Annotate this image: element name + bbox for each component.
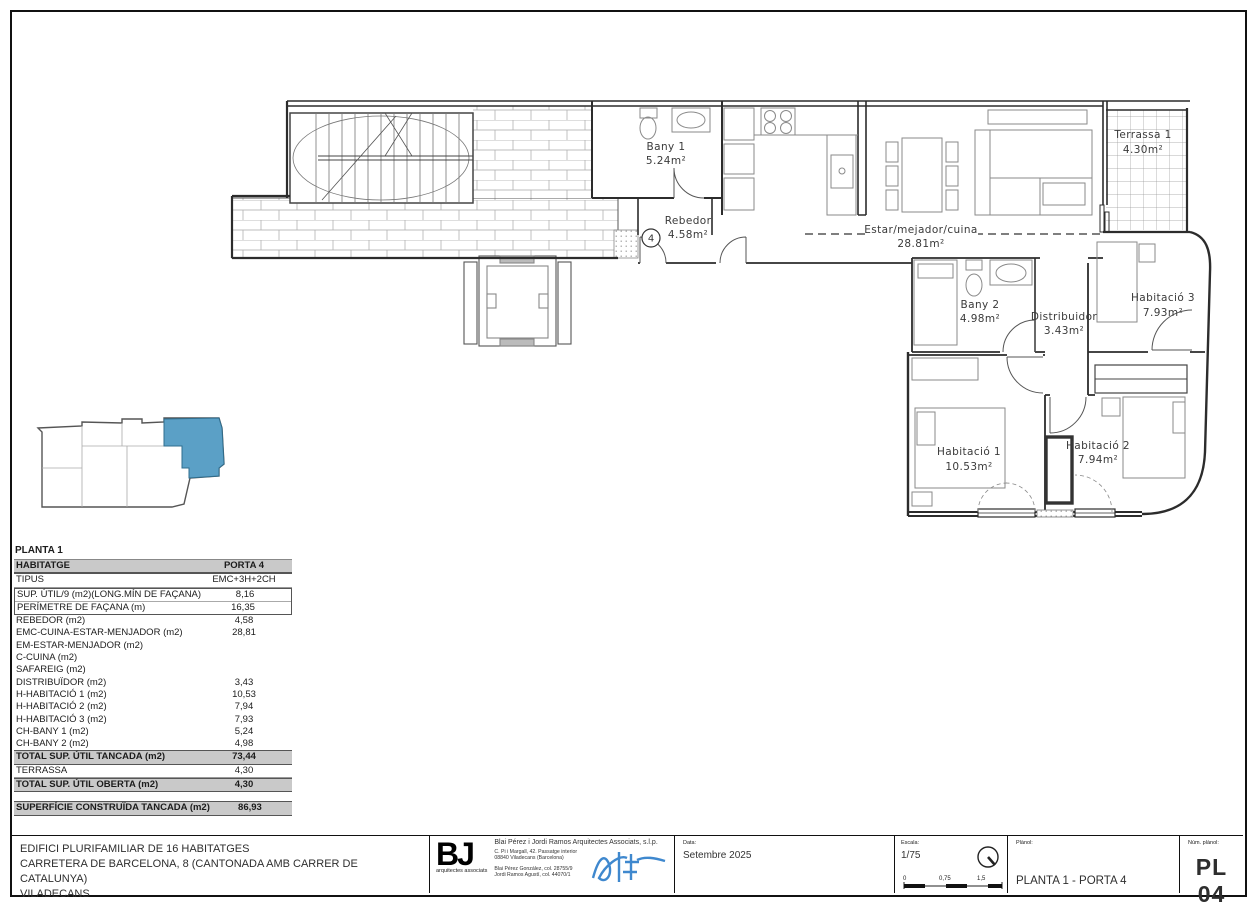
signature-stamp	[575, 848, 670, 888]
date-cell: Data: Setembre 2025	[675, 836, 895, 893]
bj-logo-subtitle: arquitectes associats	[436, 868, 487, 874]
architect-block: BJ arquitectes associats Blai Pérez i Jo…	[430, 836, 675, 893]
sheet-title-cell: Plànol: PLANTA 1 - PORTA 4	[1008, 836, 1180, 893]
project-line-2: CARRETERA DE BARCELONA, 8 (CANTONADA AMB…	[20, 857, 419, 887]
north-arrow-icon	[975, 844, 1001, 870]
scale-cell: Escala: 1/75 0 0,75 1,5	[895, 836, 1008, 893]
bj-logo: BJ	[436, 840, 487, 868]
scale-tick-0: 0	[903, 876, 907, 882]
project-line-3: VILADECANS	[20, 887, 419, 902]
date-value: Setembre 2025	[683, 850, 886, 861]
sheet-number-cell: Núm. plànol: PL 04	[1180, 836, 1243, 893]
sheet-number-label: Núm. plànol:	[1188, 840, 1235, 846]
scale-tick-2: 1,5	[977, 876, 986, 882]
drawing-sheet: 4 Bany 1 5.24m² Rebedor 4.58m² Estar/mej…	[0, 0, 1257, 903]
architect-logo: BJ arquitectes associats	[436, 840, 487, 889]
scale-tick-1: 0,75	[939, 876, 951, 882]
scale-bar: 0 0,75 1,5	[901, 874, 1005, 890]
architect-firm: Blai Pérez i Jordi Ramos Arquitectes Ass…	[494, 840, 657, 846]
sheet-title-value: PLANTA 1 - PORTA 4	[1016, 875, 1127, 887]
sheet-number-value: PL 04	[1188, 854, 1235, 903]
project-line-1: EDIFICI PLURIFAMILIAR DE 16 HABITATGES	[20, 842, 419, 857]
date-label: Data:	[683, 840, 886, 846]
title-block: EDIFICI PLURIFAMILIAR DE 16 HABITATGES C…	[10, 835, 1243, 893]
project-info: EDIFICI PLURIFAMILIAR DE 16 HABITATGES C…	[10, 836, 430, 893]
sheet-title-label: Plànol:	[1016, 840, 1171, 846]
